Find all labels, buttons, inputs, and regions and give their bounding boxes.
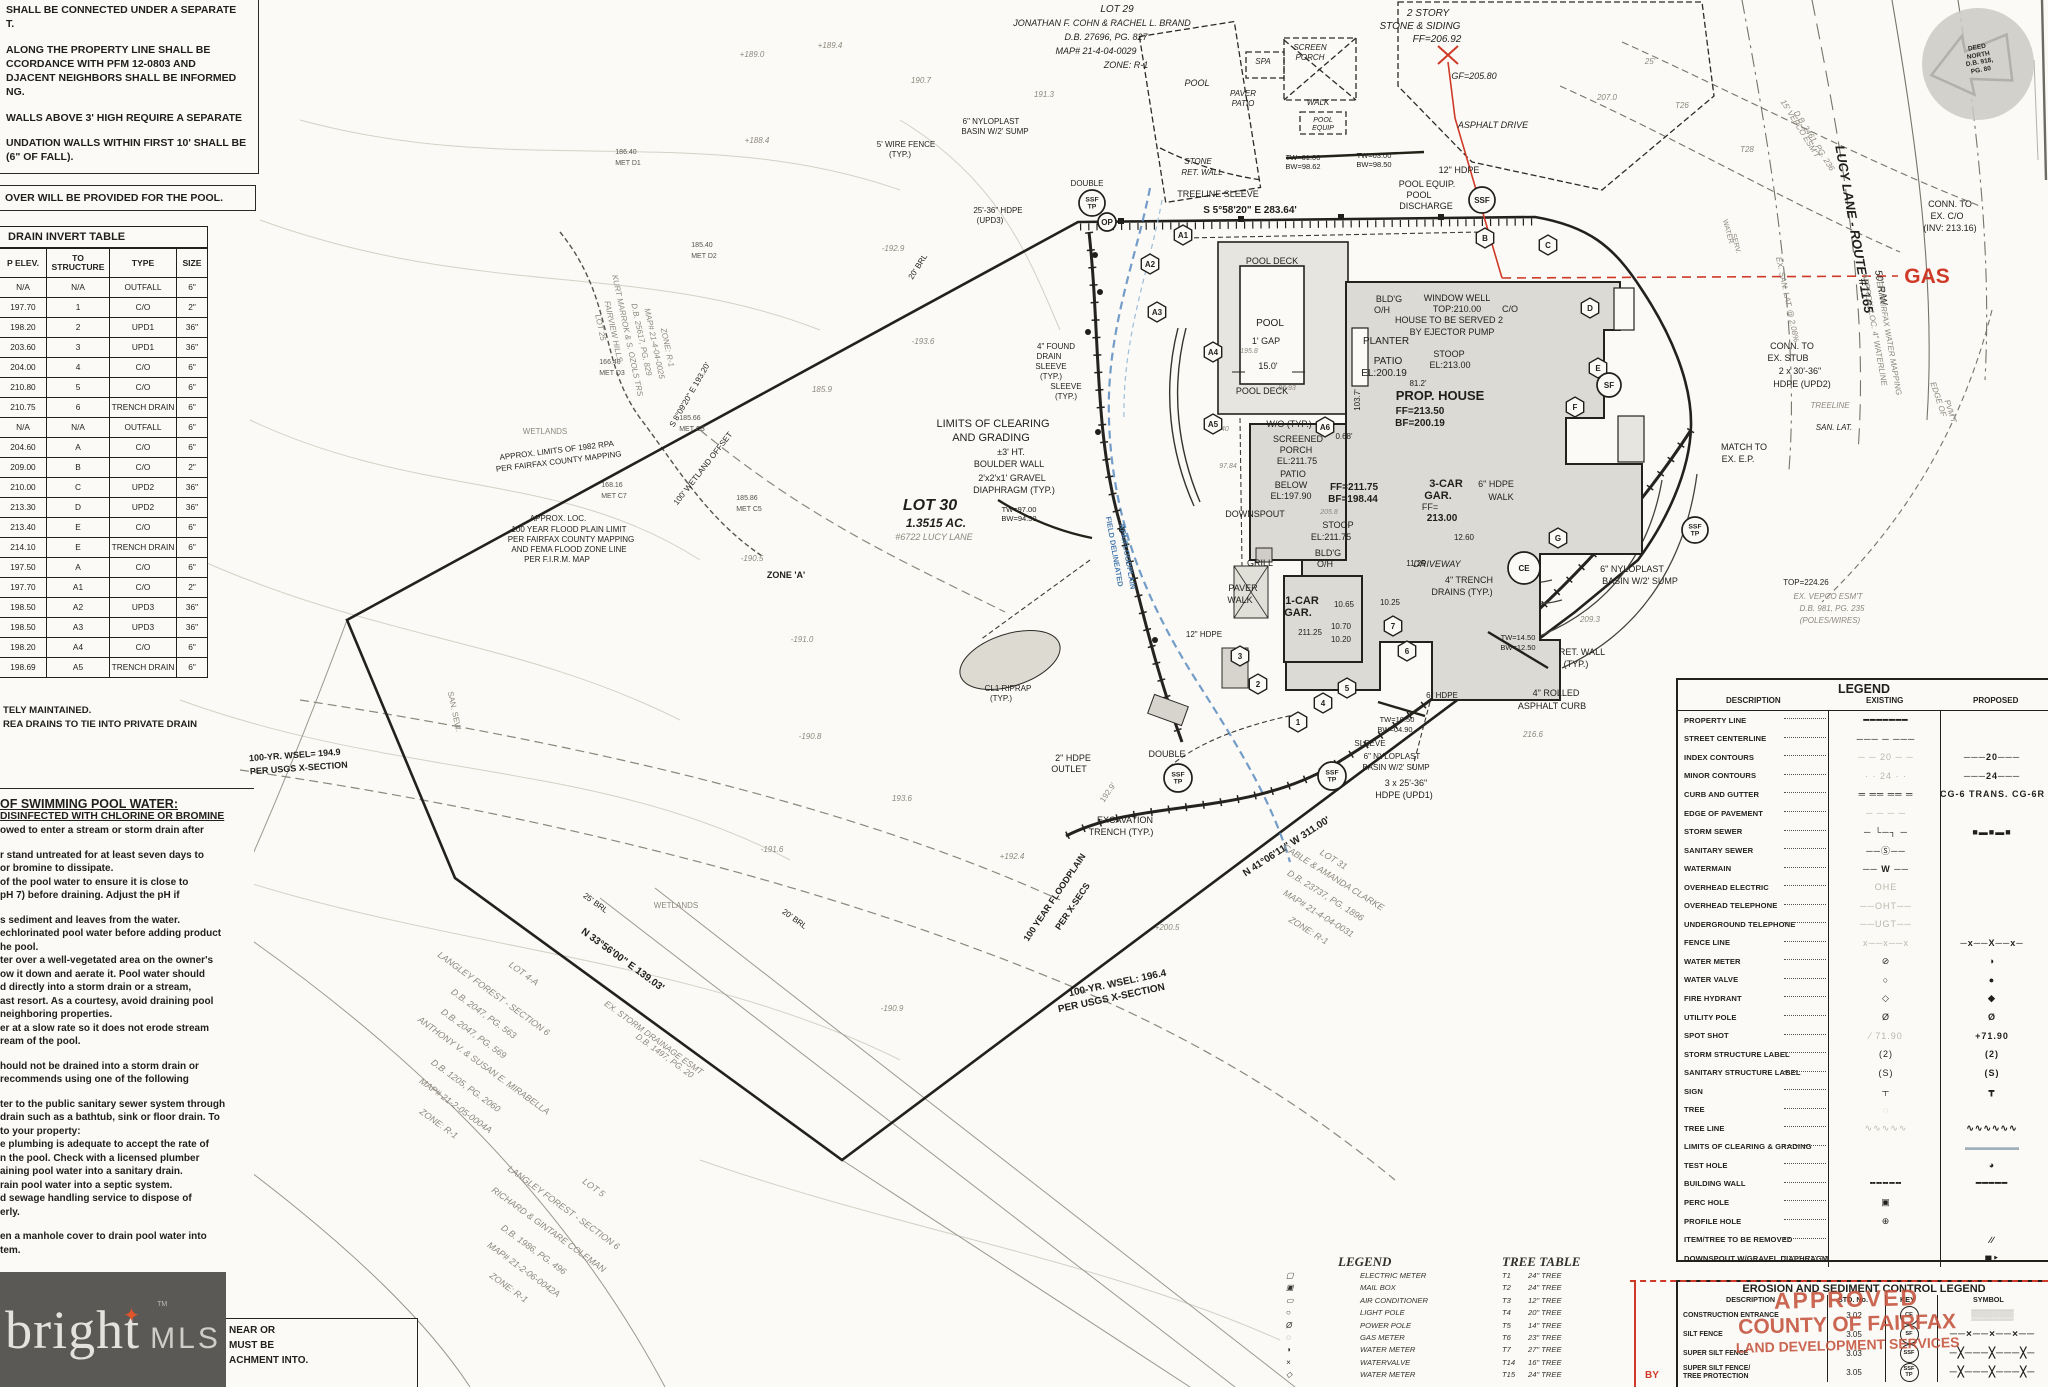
esc-divider — [1827, 1295, 1828, 1382]
plan-label: +189.4 — [818, 41, 843, 50]
plan-label: SLEEVE — [1035, 362, 1066, 371]
plan-label: D.B. 27696, PG. 827 — [1064, 32, 1148, 42]
drain-table-row: 210.00CUPD236" — [0, 478, 208, 498]
plan-label: 2'x2'x1' GRAVEL — [978, 473, 1046, 483]
plan-label: (TYP.) — [990, 694, 1012, 703]
plan-label: (TYP.) — [1040, 372, 1062, 381]
legend-proposed-symbol: ─x──X──x─ — [1940, 938, 2044, 948]
legend-row: WATERMAIN── W ── — [1678, 859, 2048, 878]
sediment-control-circle: SSFTP — [1318, 762, 1346, 790]
plan-label: PROP. HOUSE — [1396, 388, 1485, 403]
svg-text:3: 3 — [1238, 652, 1243, 661]
esc-key-icon: SSF — [1900, 1344, 1919, 1363]
tree-table-row: T224" TREE — [1502, 1282, 1642, 1294]
plan-label: 168.16 — [601, 482, 623, 489]
plan-label: 213.00 — [1427, 513, 1458, 524]
note-line: he pool. — [0, 941, 254, 955]
site-legend-title: LEGEND — [1284, 1254, 1498, 1270]
plan-label: 12" HDPE — [1186, 630, 1222, 639]
svg-text:2: 2 — [1256, 680, 1261, 689]
plan-label: PORCH — [1296, 53, 1325, 62]
drain-table-row: 203.603UPD136" — [0, 338, 208, 358]
legend-existing-symbol: OHE — [1832, 882, 1940, 892]
legend-row: EDGE OF PAVEMENT─ ─ ─ ─ — [1678, 804, 2048, 823]
plan-label: SLEEVE — [1050, 382, 1081, 391]
site-legend-items: ▢ELECTRIC METER▣MAIL BOX▭AIR CONDITIONER… — [1284, 1270, 1498, 1382]
plan-label: BF=198.44 — [1328, 494, 1378, 505]
stamp-border-top — [1630, 1280, 2048, 1282]
plan-label: BASIN W/2' SUMP — [1362, 763, 1429, 772]
legend-existing-symbol: ╍╍╍╍╍ — [1832, 1178, 1940, 1189]
note-line: (6" OF FALL). — [6, 150, 254, 164]
plan-label: SLEEVE — [1354, 739, 1385, 748]
stamp-border-left — [1634, 1280, 1636, 1387]
plan-label: DRAIN — [1037, 352, 1062, 361]
legend-col-description: DESCRIPTION — [1726, 696, 1781, 705]
plan-label: PLANTER — [1363, 336, 1409, 347]
sediment-control-circle: OP — [1098, 213, 1116, 231]
legend-row: PROFILE HOLE⊕ — [1678, 1212, 2048, 1231]
plan-label: 186.40 — [615, 149, 637, 156]
legend-proposed-symbol: ◕ — [1940, 1160, 2044, 1170]
plan-label: -190.5 — [741, 554, 764, 563]
plan-label: 6" NYLOPLAST — [1600, 564, 1664, 574]
note-line: s sediment and leaves from the water. — [0, 914, 254, 928]
plan-label: DRAINS (TYP.) — [1431, 587, 1492, 597]
plan-label: 2" HDPE — [1055, 753, 1091, 763]
note-line: ream of the pool. — [0, 1035, 254, 1049]
scan-artifacts — [2034, 0, 2046, 180]
plan-label: CONN. TO — [1928, 199, 1972, 209]
existing-buildings — [1139, 2, 1714, 202]
plan-label: 20' BRL — [907, 252, 930, 281]
plan-label: EXCAVATION — [1097, 815, 1153, 825]
svg-text:5: 5 — [1345, 684, 1350, 693]
legend-row: TREE◌ — [1678, 1100, 2048, 1119]
plan-label: TW=14.50 — [1501, 633, 1536, 642]
plan-label: OUTLET — [1051, 764, 1087, 774]
star-icon: ✦ — [123, 1303, 140, 1328]
plan-label: 3 x 25'-36" — [1385, 778, 1427, 788]
top-notes-lines: SHALL BE CONNECTED UNDER A SEPARATET.ALO… — [6, 3, 254, 165]
plan-label: +200.5 — [1155, 923, 1180, 932]
pool-notes-subheading: DISINFECTED WITH CHLORINE OR BROMINE — [0, 811, 254, 822]
drain-table-header: P ELEV. — [0, 249, 47, 278]
legend-row: STORM STRUCTURE LABEL(2)(2) — [1678, 1045, 2048, 1064]
esc-divider — [1885, 1295, 1886, 1382]
legend-proposed-symbol: ━━━━━ — [1940, 1178, 2044, 1189]
plan-label: DRIVEWAY — [1413, 559, 1461, 569]
site-legend: LEGEND ▢ELECTRIC METER▣MAIL BOX▭AIR COND… — [1284, 1254, 1498, 1382]
plan-label: BF=200.19 — [1395, 418, 1445, 429]
plan-label: TREELINE SLEEVE — [1177, 189, 1259, 199]
plan-label: MET C5 — [736, 506, 762, 513]
legend-existing-symbol: (2) — [1832, 1049, 1940, 1059]
plan-label: 192.9' — [1098, 781, 1118, 804]
plan-label: STONE — [1184, 157, 1212, 166]
wetlands-line — [560, 232, 762, 556]
esc-col-description: DESCRIPTION — [1726, 1295, 1775, 1304]
plan-label: STOOP — [1322, 520, 1353, 530]
plan-label: 195.8 — [1240, 348, 1258, 355]
plan-label: APPROX. LOC. — [530, 514, 586, 523]
plan-label: 103.7' — [1353, 389, 1362, 411]
legend-existing-symbol: ⁄ 71.90 — [1832, 1031, 1940, 1041]
plan-label: 10.70 — [1331, 622, 1352, 631]
note-line: ACHMENT INTO. — [229, 1353, 417, 1368]
plan-label: LOT 30 — [903, 497, 957, 514]
plan-label: 2 x 30'-36" — [1779, 366, 1821, 376]
plan-label: 1-CAR — [1285, 595, 1319, 607]
drain-table-row: 198.69A5TRENCH DRAIN6" — [0, 658, 208, 678]
note-line: pH 7) before draining. Adjust the pH if — [0, 889, 254, 903]
plan-label: AND GRADING — [952, 432, 1030, 444]
drain-table-row: 213.30DUPD236" — [0, 498, 208, 518]
legend-proposed-symbol: +71.90 — [1940, 1031, 2044, 1041]
plan-label: (INV: 213.16) — [1923, 223, 1976, 233]
legend-existing-symbol: ─ ─ ─ ─ — [1832, 808, 1940, 818]
svg-text:G: G — [1555, 534, 1561, 543]
note-line: TELY MAINTAINED. — [3, 704, 197, 718]
plan-label: -191.6 — [761, 845, 784, 854]
esc-col-symbol: SYMBOL — [1973, 1295, 2004, 1304]
plan-label: BW=12.50 — [1500, 643, 1535, 652]
legend-row: STORM SEWER─ └─┐ ─■▬■▬■ — [1678, 822, 2048, 841]
note-line: drain such as a bathtub, sink or floor d… — [0, 1111, 254, 1125]
storm-structure-hexagon: 4 — [1314, 693, 1331, 713]
legend-row: OVERHEAD TELEPHONE──OHT── — [1678, 896, 2048, 915]
plan-label: GAR. — [1284, 607, 1312, 619]
legend-proposed-symbol: (S) — [1940, 1068, 2044, 1078]
plan-label: 20' BRL — [780, 907, 809, 931]
plan-label: EL:211.75 — [1311, 532, 1351, 542]
general-notes-box: SHALL BE CONNECTED UNDER A SEPARATET.ALO… — [0, 0, 259, 174]
plan-label: ZONE 'A' — [767, 570, 805, 580]
note-line: ow it down and aerate it. Pool water sho… — [0, 968, 254, 982]
legend-existing-symbol: · · 24 · · — [1832, 771, 1940, 781]
plan-label: DISCHARGE — [1399, 201, 1453, 211]
legend-row: INDEX CONTOURS─ ─ 20 ─ ────20─── — [1678, 748, 2048, 767]
site-legend-symbol-icon: ▭ — [1286, 1295, 1294, 1307]
plan-label: 10.65 — [1334, 600, 1355, 609]
esc-legend-row: SUPER SILT FENCE3.03SSF─╳───╳───╳─ — [1678, 1344, 2048, 1363]
plan-label: 25' — [1644, 57, 1656, 66]
esc-symbol: ─╳───╳───╳─ — [1935, 1367, 2048, 1378]
tree-table-title: TREE TABLE — [1502, 1254, 1642, 1270]
note-line: hould not be drained into a storm drain … — [0, 1060, 254, 1074]
plan-label: MET C7 — [601, 493, 627, 500]
plan-label: (TYP.) — [1055, 392, 1077, 401]
legend-proposed-symbol: ◆ — [1940, 993, 2044, 1004]
esc-legend-row: CONSTRUCTION ENTRANCE3.02CE▒▒▒▒▒▒ — [1678, 1306, 2048, 1325]
drain-table-header: SIZE — [177, 249, 208, 278]
svg-text:CE: CE — [1518, 564, 1530, 573]
plan-label: TW=10.50 — [1380, 715, 1415, 724]
plan-label: D.B. 981, PG. 235 — [1800, 604, 1865, 613]
note-line — [6, 125, 254, 136]
plan-label: WALK — [1227, 595, 1252, 605]
plan-label: 25' BRL — [581, 891, 610, 915]
legend-existing-symbol: ⊘ — [1832, 956, 1940, 967]
plan-label: LOT 4-A — [507, 960, 540, 988]
plan-label: MET D2 — [691, 253, 717, 260]
plan-label: HDPE (UPD1) — [1375, 790, 1433, 800]
note-line: ter over a well-vegetated area on the ow… — [0, 954, 254, 968]
plan-label: 3-CAR — [1429, 478, 1463, 490]
site-legend-symbol-icon: ◑ — [1286, 1344, 1291, 1356]
plan-label: GAS — [1904, 265, 1950, 288]
svg-text:A2: A2 — [1145, 260, 1156, 269]
plan-label: SERV. — [1729, 233, 1741, 254]
plan-label: CL1 RIPRAP — [985, 684, 1032, 693]
sediment-control-circle: SSFTP — [1079, 190, 1105, 216]
drain-table-row: 213.40EC/O6" — [0, 518, 208, 538]
plan-label: MATCH TO — [1721, 442, 1767, 452]
drain-table-row: 214.10ETRENCH DRAIN6" — [0, 538, 208, 558]
plan-label: 100' WETLAND OFFSET — [672, 430, 735, 507]
plan-label: BOULDER WALL — [974, 459, 1044, 469]
legend-row: TREE LINE∿∿∿∿∿∿∿∿∿∿∿ — [1678, 1119, 2048, 1138]
attachment-note-box: NEAR ORMUST BEACHMENT INTO. — [212, 1318, 418, 1387]
legend-box: LEGEND DESCRIPTION EXISTING PROPOSED PRO… — [1676, 678, 2048, 1262]
legend-proposed-symbol: ∕∕ — [1940, 1235, 2044, 1245]
legend-existing-symbol: Ø — [1832, 1012, 1940, 1022]
drain-table-row: 198.20A4C/O6" — [0, 638, 208, 658]
storm-structure-hexagon: 2 — [1249, 674, 1266, 694]
legend-proposed-symbol: CG-6 TRANS. CG-6R — [1940, 789, 2044, 799]
legend-row: UNDERGROUND TELEPHONE──UGT── — [1678, 915, 2048, 934]
svg-text:D: D — [1587, 304, 1593, 313]
note-line: echlorinated pool water before adding pr… — [0, 927, 254, 941]
legend-existing-symbol: ═ ══ ══ ═ — [1832, 789, 1940, 799]
svg-text:1: 1 — [1296, 718, 1301, 727]
storm-structure-hexagon: 7 — [1384, 616, 1401, 636]
site-legend-item: ▢ELECTRIC METER — [1284, 1270, 1498, 1282]
plan-label: EL:211.75 — [1277, 456, 1317, 466]
plan-label: PAVER — [1228, 583, 1258, 593]
plan-label: LOT 5 — [581, 1176, 608, 1199]
plan-label: C/O — [1502, 304, 1518, 314]
site-legend-symbol-icon: ▢ — [1286, 1270, 1294, 1282]
drain-table-row: N/AN/AOUTFALL6" — [0, 418, 208, 438]
plan-label: GAR. — [1424, 490, 1452, 502]
drain-table-row: N/AN/AOUTFALL6" — [0, 278, 208, 298]
plan-label: 15.0' — [1258, 361, 1278, 371]
plan-label: ZONE: R-1 — [1103, 60, 1149, 70]
drain-table-row: 197.50AC/O6" — [0, 558, 208, 578]
plan-label: LIMITS OF CLEARING — [936, 418, 1049, 430]
esc-key-icon: SSFTP — [1900, 1363, 1919, 1382]
esc-key-icon: SF — [1900, 1325, 1919, 1344]
note-line: r stand untreated for at least seven day… — [0, 849, 254, 863]
note-line: to your property: — [0, 1125, 254, 1139]
plan-label: 209.3 — [1579, 615, 1601, 624]
svg-text:7: 7 — [1391, 622, 1396, 631]
legend-row: SPOT SHOT⁄ 71.90+71.90 — [1678, 1026, 2048, 1045]
legend-row: PERC HOLE▣ — [1678, 1193, 2048, 1212]
legend-existing-symbol: ∿∿∿∿∿ — [1832, 1123, 1940, 1134]
note-line: neighboring properties. — [0, 1008, 254, 1022]
storm-structure-hexagon: F — [1566, 397, 1583, 417]
site-legend-symbol-icon: ▣ — [1286, 1282, 1294, 1294]
plan-label: DOUBLE — [1071, 179, 1104, 188]
svg-text:SSF: SSF — [1474, 196, 1490, 205]
plan-label: D.B. 2461, PG. 236 — [1792, 109, 1837, 173]
esc-symbol: ▒▒▒▒▒▒ — [1935, 1310, 2048, 1321]
drain-table-header: TOSTRUCTURE — [47, 249, 110, 278]
esc-symbol: ──×──×──×── — [1935, 1329, 2048, 1340]
plan-label: BLD'G — [1376, 294, 1402, 304]
drain-table-row: 209.00BC/O2" — [0, 458, 208, 478]
note-line: n the pool. Check with a licensed plumbe… — [0, 1152, 254, 1166]
plan-label: TOP=224.26 — [1783, 578, 1829, 587]
plan-label: D.B. 2047, PG. 563 — [449, 987, 518, 1041]
legend-proposed-symbol: ┳ — [1940, 1086, 2044, 1097]
tree-table-row: T420" TREE — [1502, 1307, 1642, 1319]
storm-structure-hexagon: A1 — [1174, 225, 1191, 245]
note-line — [0, 1049, 254, 1060]
plan-label: EL:200.19 — [1361, 368, 1407, 379]
plan-label: T26 — [1675, 101, 1689, 110]
plan-label: WINDOW WELL — [1424, 293, 1491, 303]
plan-label: SCREENED — [1273, 434, 1324, 444]
plan-label: POOL — [1184, 78, 1209, 88]
plan-label: BY EJECTOR PUMP — [1410, 327, 1495, 337]
site-plan-sheet: LOT 29JONATHAN F. COHN & RACHEL L. BRAND… — [0, 0, 2048, 1387]
note-line: NEAR OR — [229, 1323, 417, 1338]
site-legend-item: ×WATERVALVE — [1284, 1357, 1498, 1369]
plan-label: WALK — [1488, 492, 1513, 502]
note-line: en a manhole cover to drain pool water i… — [0, 1230, 254, 1244]
note-line — [6, 32, 254, 43]
legend-col-existing: EXISTING — [1866, 696, 1903, 705]
legend-existing-symbol: ── W ── — [1832, 864, 1940, 874]
esc-symbol: ─╳───╳───╳─ — [1935, 1348, 2048, 1359]
plan-label: -193.6 — [912, 337, 935, 346]
legend-row: SANITARY STRUCTURE LABEL(S)(S) — [1678, 1063, 2048, 1082]
storm-structure-hexagon: 1 — [1289, 712, 1306, 732]
legend-row: FENCE LINEx──x──x─x──X──x─ — [1678, 934, 2048, 953]
plan-label: HDPE (UPD2) — [1773, 379, 1831, 389]
legend-existing-symbol: ─ ─ 20 ─ ─ — [1832, 752, 1940, 762]
legend-proposed-symbol: ▬▬▬▬▬▬ — [1940, 1142, 2044, 1152]
svg-text:A3: A3 — [1152, 308, 1163, 317]
trademark-text: TM — [157, 1301, 167, 1308]
drain-table-row: 197.70A1C/O2" — [0, 578, 208, 598]
legend-existing-symbol: ┬ — [1832, 1086, 1940, 1096]
drain-table-row: 204.60AC/O6" — [0, 438, 208, 458]
svg-text:B: B — [1482, 234, 1488, 243]
north-arrow: DEEDNORTHD.B. 918,PG. 80 — [1922, 8, 2034, 120]
legend-existing-symbol: ⊕ — [1832, 1216, 1940, 1227]
legend-divider — [1828, 711, 1829, 1267]
plan-label: 1.3515 AC. — [906, 516, 966, 530]
plan-label: FF= — [1422, 502, 1438, 512]
plan-label: 216.6 — [1522, 730, 1544, 739]
plan-label: 6" NYLOPLAST — [963, 117, 1020, 126]
legend-existing-symbol: ━━━━━━━ — [1832, 715, 1940, 726]
legend-existing-symbol: ◇ — [1832, 993, 1940, 1004]
plan-label: ±3' HT. — [997, 447, 1025, 457]
plan-label: T28 — [1740, 145, 1754, 154]
plan-label: MET C3 — [679, 426, 705, 433]
esc-legend-row: SILT FENCE3.05SF──×──×──×── — [1678, 1325, 2048, 1344]
plan-label: EX. VEPCO ESM'T — [1793, 592, 1863, 601]
note-line: UNDATION WALLS WITHIN FIRST 10' SHALL BE — [6, 136, 254, 150]
drain-table-row: 198.202UPD136" — [0, 318, 208, 338]
plan-label: 207.0 — [1596, 93, 1618, 102]
legend-existing-symbol: ▣ — [1832, 1197, 1940, 1208]
plan-label: +192.4 — [1000, 852, 1025, 861]
plan-label: +188.4 — [745, 136, 770, 145]
boulder-wall — [1170, 328, 1200, 506]
sediment-control-circle: SF — [1597, 373, 1621, 397]
plan-label: 185.9 — [812, 385, 833, 394]
plan-label: GF=205.80 — [1451, 71, 1496, 81]
plan-label: PORCH — [1280, 445, 1313, 455]
plan-label: 6" HDPE — [1478, 479, 1514, 489]
legend-row: OVERHEAD ELECTRICOHE — [1678, 878, 2048, 897]
plan-label: EL:213.00 — [1429, 360, 1470, 370]
plan-label: RET. WALL — [1559, 647, 1605, 657]
plan-label: 191.3 — [1034, 90, 1055, 99]
drain-table-row: 197.701C/O2" — [0, 298, 208, 318]
legend-proposed-symbol: ───20─── — [1940, 752, 2044, 762]
plan-label: S 5°58'20" E 283.64' — [1203, 205, 1297, 216]
plan-label: BASIN W/2' SUMP — [1602, 576, 1678, 586]
tree-table-row: T1416" TREE — [1502, 1357, 1642, 1369]
pool-cover-note: OVER WILL BE PROVIDED FOR THE POOL. — [0, 185, 256, 211]
plan-label: O/H — [1317, 559, 1333, 569]
legend-row: DOWNSPOUT W/GRAVEL DIAPHRAGM◼‣ — [1678, 1249, 2048, 1268]
legend-proposed-symbol: (2) — [1940, 1049, 2044, 1059]
storm-structure-hexagon: A4 — [1204, 342, 1221, 362]
note-line — [0, 1087, 254, 1098]
esc-col-key: KEY — [1900, 1295, 1915, 1304]
plan-label: 185.86 — [736, 495, 758, 502]
plan-label: SAN. SEW. — [446, 691, 463, 733]
tree-table-row: T124" TREE — [1502, 1270, 1642, 1282]
storm-structure-hexagon: B — [1476, 228, 1493, 248]
tree-table-row: T1524" TREE — [1502, 1369, 1642, 1381]
note-line: SHALL BE CONNECTED UNDER A SEPARATE — [6, 3, 254, 17]
note-line: T. — [6, 17, 254, 31]
note-line: ter to the public sanitary sewer system … — [0, 1098, 254, 1112]
plan-label: BASIN W/2' SUMP — [961, 127, 1028, 136]
site-legend-item: ◑WATER METER — [1284, 1344, 1498, 1356]
plan-label: 12" HDPE — [1439, 165, 1480, 175]
note-line: ALONG THE PROPERTY LINE SHALL BE — [6, 43, 254, 57]
plan-label: 81.2' — [1409, 379, 1427, 388]
plan-label: PER F.I.R.M. MAP — [524, 555, 590, 564]
svg-text:A6: A6 — [1320, 423, 1331, 432]
plan-label: DOWNSPOUT — [1225, 509, 1285, 519]
plan-label: JONATHAN F. COHN & RACHEL L. BRAND — [1012, 18, 1191, 28]
svg-text:E: E — [1595, 364, 1601, 373]
plan-label: MAP# 21-2-06-0042A — [486, 1240, 562, 1299]
legend-existing-symbol: ─── ─ ─── — [1832, 734, 1940, 744]
legend-existing-symbol: ──OHT── — [1832, 901, 1940, 911]
plan-label: 6" NYLOPLAST — [1364, 752, 1421, 761]
plan-label: MET D3 — [599, 370, 625, 377]
plan-label: -191.0 — [791, 635, 814, 644]
plan-label: TW=01.00 — [1286, 153, 1321, 162]
legend-existing-symbol: ─ └─┐ ─ — [1832, 827, 1940, 837]
pool-notes-heading: OF SWIMMING POOL WATER: — [0, 797, 254, 811]
note-line: e plumbing is adequate to accept the rat… — [0, 1138, 254, 1152]
note-line: tem. — [0, 1244, 254, 1258]
plan-label: POOL DECK — [1246, 256, 1298, 266]
